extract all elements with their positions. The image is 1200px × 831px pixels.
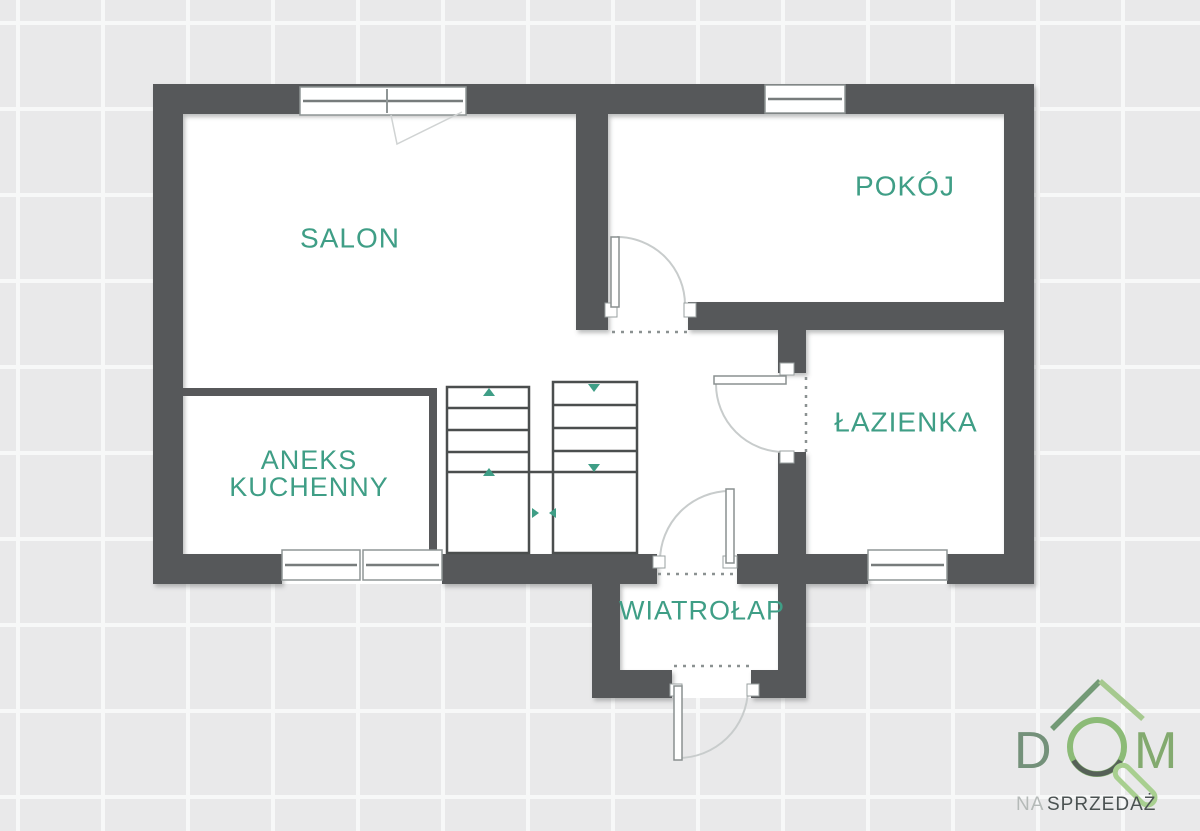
room-label-wiatrolap: WIATROŁAP [619,598,785,625]
logo-subtitle-na: NA [1016,794,1044,815]
room-label-aneks-line2: KUCHENNY [229,474,389,501]
window-pokoj [765,85,845,113]
wall-wiatrolap-bottom-left [592,670,672,698]
wall-salon-pokoj-divider [576,114,608,330]
logo-dom-na-sprzedaz: D M NA SPRZEDAŻ [1000,672,1200,831]
logo-letter-d: D [1014,722,1052,780]
logo-letter-m: M [1134,722,1177,780]
wall-left [153,84,183,584]
room-label-aneks-line1: ANEKS [229,447,389,474]
wall-pokoj-lazienka [688,302,1004,330]
wall-bottom-seg4 [947,554,1034,584]
wall-top [153,84,1034,114]
wall-lazienka-left-lower [778,452,806,554]
logo-subtitle-sprzedaz: SPRZEDAŻ [1047,794,1156,815]
door-leaf [726,489,734,563]
window-lazienka [868,550,947,580]
room-label-aneks: ANEKS KUCHENNY [229,447,389,501]
room-label-lazienka: ŁAZIENKA [834,409,977,436]
door-leaf [674,686,682,760]
room-label-pokoj: POKÓJ [855,173,955,200]
wall-bottom-seg3 [737,554,868,584]
room-label-salon: SALON [300,225,400,252]
window-aneks-2 [363,550,442,580]
window-aneks-1 [282,550,360,580]
logo-graphic: D M NA SPRZEDAŻ [1000,672,1200,831]
door-leaf [714,376,786,384]
door-leaf [611,237,619,307]
wall-bottom-seg1 [153,554,282,584]
floor-plan-page: SALON POKÓJ ŁAZIENKA ANEKS KUCHENNY WIAT… [0,0,1200,831]
wall-right [1004,84,1034,584]
wall-bottom-seg2 [442,554,657,584]
